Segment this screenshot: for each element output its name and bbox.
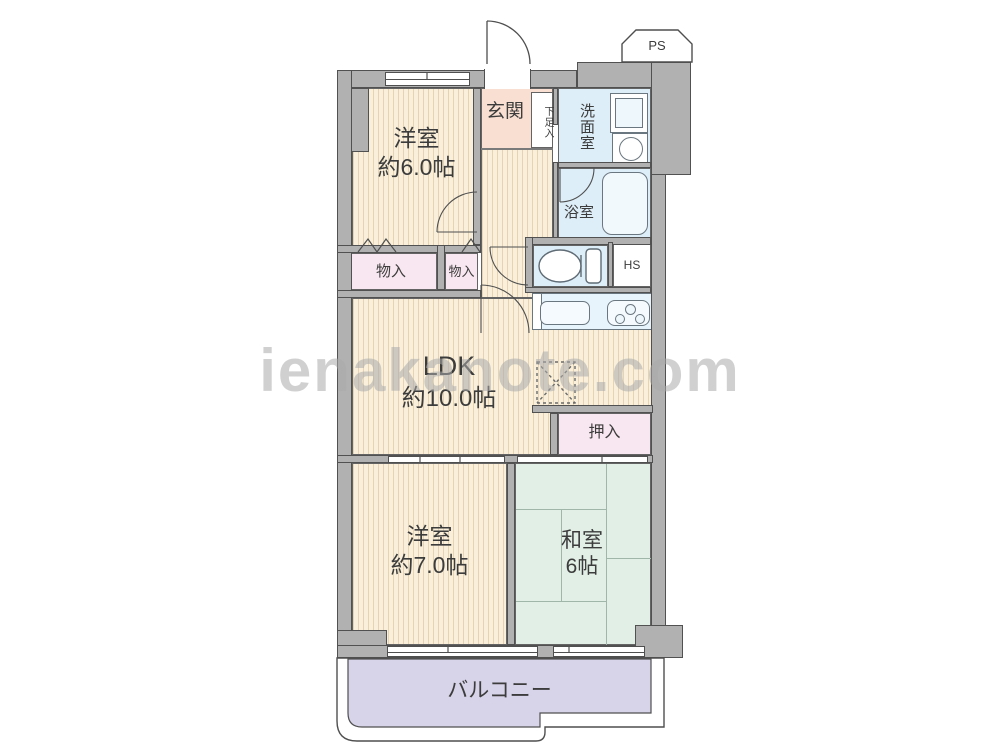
storage2-label: 物入 xyxy=(443,264,480,280)
wall-western2-japanese xyxy=(507,463,515,645)
wall-toilet-left xyxy=(525,237,533,293)
room-name: 和室 xyxy=(532,528,632,554)
sliding-door-ldk-western2 xyxy=(388,456,505,463)
bathtub-icon xyxy=(602,172,648,235)
tatami-joint xyxy=(516,601,606,602)
sliding-door-japanese-top xyxy=(517,456,648,463)
stove-burners-icon xyxy=(607,300,650,326)
shoe-cupboard-label: 下足入 xyxy=(534,97,552,147)
washbasin-cabinet xyxy=(612,133,648,163)
hall-shaft-label: HS xyxy=(613,258,651,273)
wall-toilet-bottom xyxy=(525,287,651,293)
storage1-label: 物入 xyxy=(345,263,437,282)
room-size: 約10.0帖 xyxy=(349,384,549,414)
entrance-door-opening xyxy=(484,69,531,89)
toilet-room-floor xyxy=(533,245,608,287)
pipe-space-label: PS xyxy=(622,38,692,54)
window-japanese-balcony xyxy=(553,646,645,657)
wall-wash-bath-divider xyxy=(558,162,651,168)
washroom-label: 洗面室 xyxy=(568,94,594,160)
room-western1-label: 洋室 約6.0帖 xyxy=(352,124,481,182)
room-western2-label: 洋室 約7.0帖 xyxy=(352,522,507,580)
burner xyxy=(635,314,645,324)
bathroom-label: 浴室 xyxy=(553,204,605,223)
entrance-step-line xyxy=(481,148,553,150)
wall-entrance-right xyxy=(553,88,558,125)
floor-plan: 洋室 約6.0帖 玄関 下足入 洗面室 浴室 物入 物入 HS LDK 約10.… xyxy=(0,0,1000,750)
burner xyxy=(625,304,636,315)
room-name: LDK xyxy=(349,350,549,384)
washing-machine-icon xyxy=(610,93,648,133)
ldk-label: LDK 約10.0帖 xyxy=(349,350,549,414)
round-basin-icon xyxy=(619,137,643,161)
wall-bath-bottom xyxy=(525,237,651,245)
entrance-label: 玄関 xyxy=(479,100,531,124)
room-size: 約6.0帖 xyxy=(352,153,481,182)
kitchen-sink-icon xyxy=(540,301,590,325)
window-western2-balcony xyxy=(387,646,538,657)
room-name: 洋室 xyxy=(352,124,481,153)
entrance-door-icon xyxy=(487,21,530,64)
balcony-label: バルコニー xyxy=(348,678,651,704)
wall-storage-bottom xyxy=(337,290,481,298)
wall-closet-left xyxy=(550,413,558,455)
room-size: 約7.0帖 xyxy=(352,551,507,580)
room-name: 洋室 xyxy=(352,522,507,551)
room-japanese-label: 和室 6帖 xyxy=(532,528,632,581)
closet-label: 押入 xyxy=(558,423,651,443)
wall-right-upper xyxy=(651,62,691,175)
wall-western1-bottom xyxy=(337,245,481,253)
wall-kitchen-closet xyxy=(532,405,653,413)
window-western1-top xyxy=(385,72,470,86)
burner xyxy=(615,314,625,324)
room-size: 6帖 xyxy=(532,554,632,580)
